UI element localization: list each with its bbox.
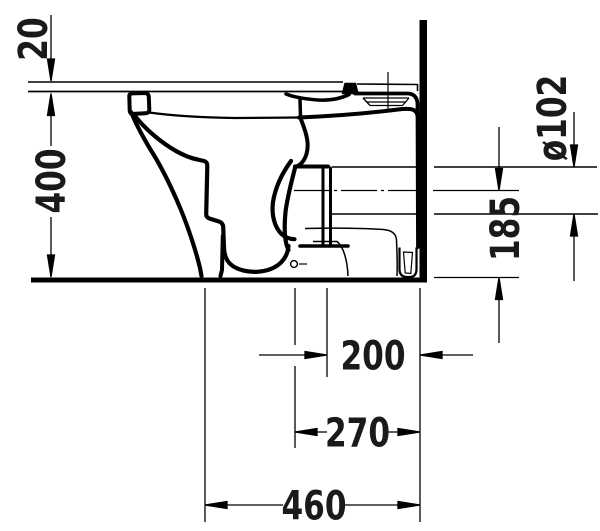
dim200-arrow-right [305, 352, 327, 359]
dim20-arrow-down [48, 59, 55, 81]
rim-shelf-thin [149, 113, 299, 119]
bowl-back-curve [295, 118, 308, 167]
dim102-arrow-up [571, 214, 578, 236]
rim-top-back [355, 94, 418, 248]
drawing-canvas: 20 400 ø102 185 200 270 460 [0, 0, 600, 531]
dim-label-diameter-102: ø102 [530, 75, 576, 162]
dimension-labels: 20 400 ø102 185 200 270 460 [11, 17, 576, 529]
front-outer-edge [131, 112, 202, 276]
wall-line [420, 20, 428, 283]
dim200-arrow-left [420, 352, 442, 359]
floor-line [31, 278, 427, 283]
foot-outline-outer [305, 228, 397, 276]
lid-top-line [357, 84, 418, 85]
pedestal-front-inner [221, 236, 223, 276]
bowl-back-opening-edge [300, 99, 301, 117]
seat-hinge [343, 84, 359, 94]
dim-label-270: 270 [325, 411, 390, 457]
dim400-arrow-up [48, 94, 55, 116]
dim185-arrow-down [496, 169, 503, 191]
dim-label-460: 460 [281, 484, 346, 530]
dim-label-20: 20 [11, 17, 57, 60]
dim-label-185: 185 [483, 196, 529, 261]
pan-outline [129, 84, 418, 277]
dim270-arrow-right [398, 429, 420, 436]
dim-label-200: 200 [340, 334, 405, 380]
rim-shelf-thick [299, 109, 418, 119]
dim460-arrow-right [398, 502, 420, 509]
dim270-arrow-left [295, 429, 317, 436]
dim-label-400: 400 [29, 148, 75, 213]
back-rim-hump [286, 94, 349, 100]
dim400-arrow-down [48, 255, 55, 277]
dim460-arrow-left [205, 502, 227, 509]
technical-drawing: 20 400 ø102 185 200 270 460 [0, 0, 600, 531]
fixing-hole-icon [291, 261, 298, 268]
flush-valve-detail [363, 98, 409, 106]
dim185-arrow-up [496, 278, 503, 300]
drain-elbow-inner [404, 252, 413, 274]
bowl-inner-front [135, 116, 289, 272]
